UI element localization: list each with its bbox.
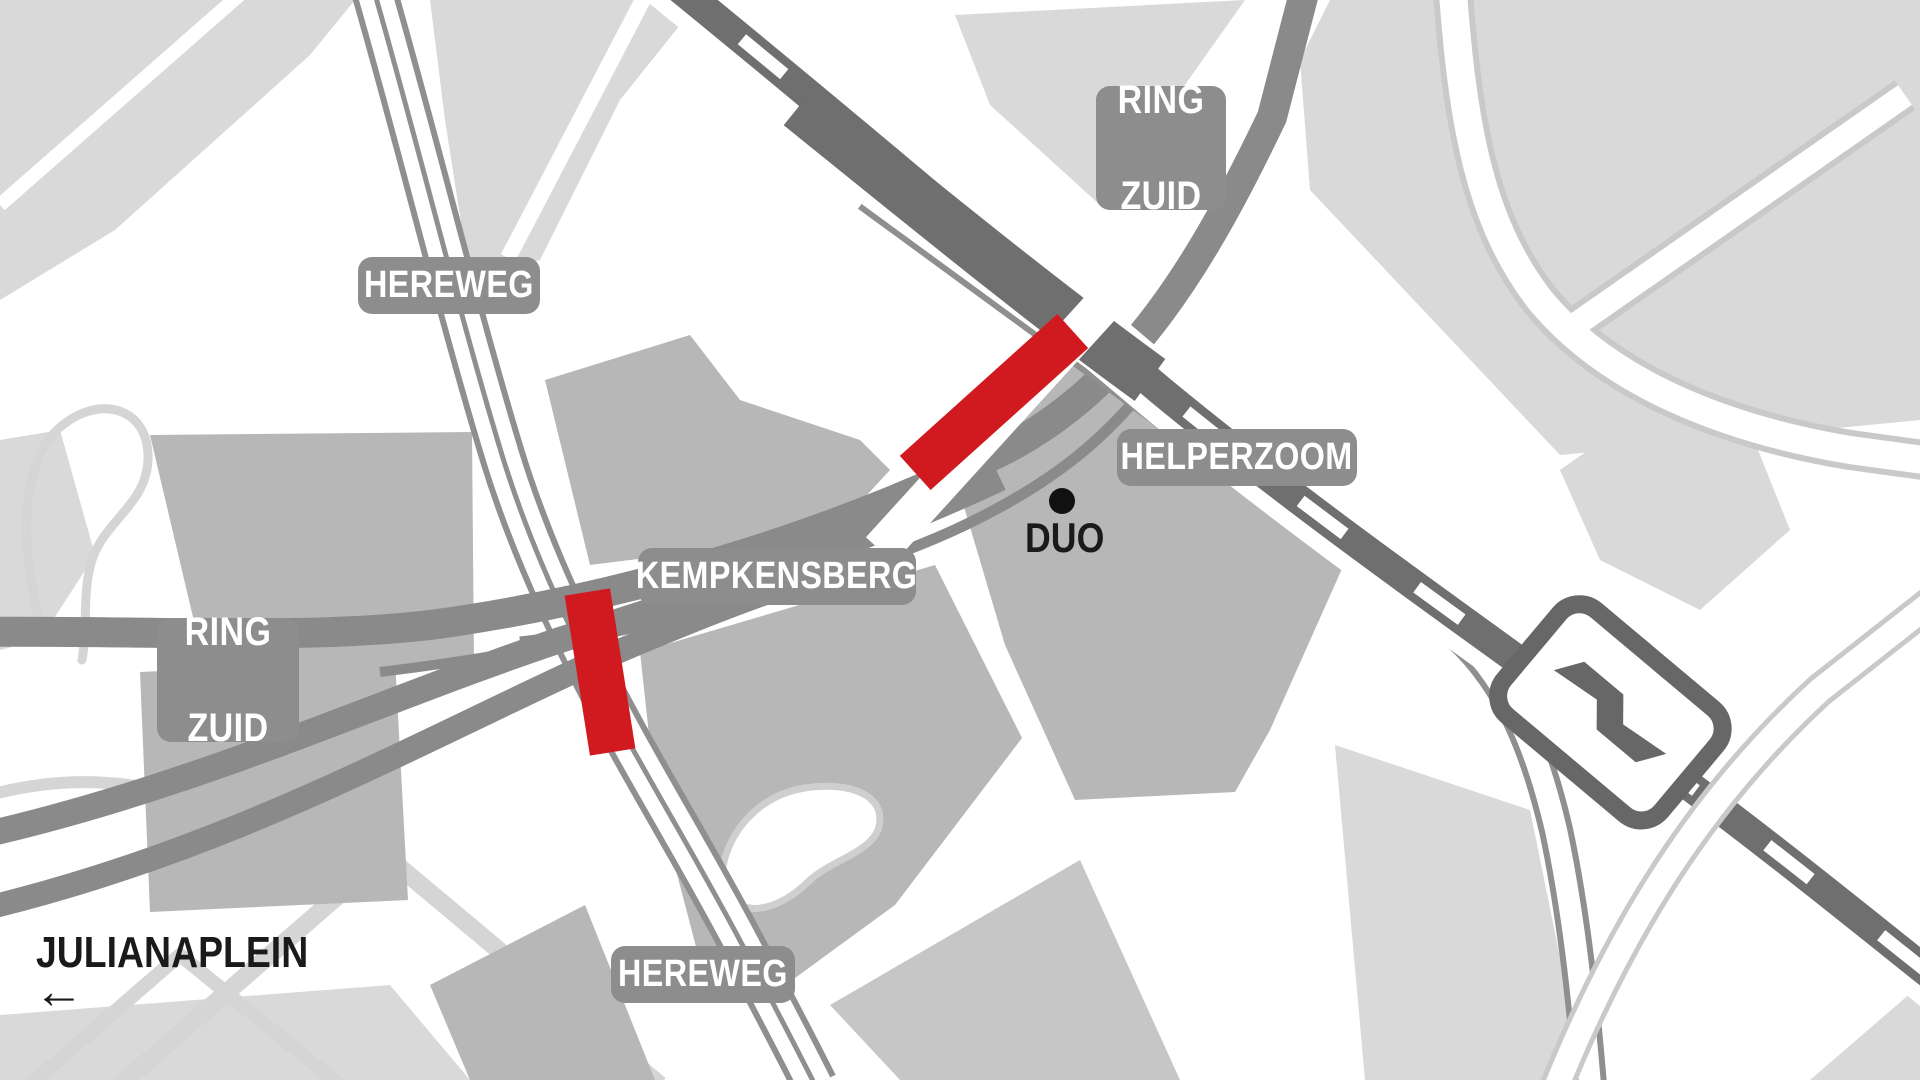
label-julianaplein: JULIANAPLEIN xyxy=(36,928,356,978)
map-canvas xyxy=(0,0,1920,1080)
label-duo: DUO xyxy=(1008,514,1122,562)
label-ring-zuid-top: RING ZUID xyxy=(1096,86,1226,210)
label-hereweg-top: HEREWEG xyxy=(358,257,540,314)
map-stage: RING ZUID RING ZUID HEREWEG KEMPKENSBERG… xyxy=(0,0,1920,1080)
julianaplein-arrow-icon: ← xyxy=(34,962,84,1020)
label-helperzoom: HELPERZOOM xyxy=(1117,429,1357,486)
label-ring-zuid-left: RING ZUID xyxy=(157,618,299,742)
duo-marker-dot xyxy=(1049,488,1075,514)
label-kempkensberg: KEMPKENSBERG xyxy=(638,548,916,605)
label-hereweg-bottom: HEREWEG xyxy=(611,946,795,1003)
